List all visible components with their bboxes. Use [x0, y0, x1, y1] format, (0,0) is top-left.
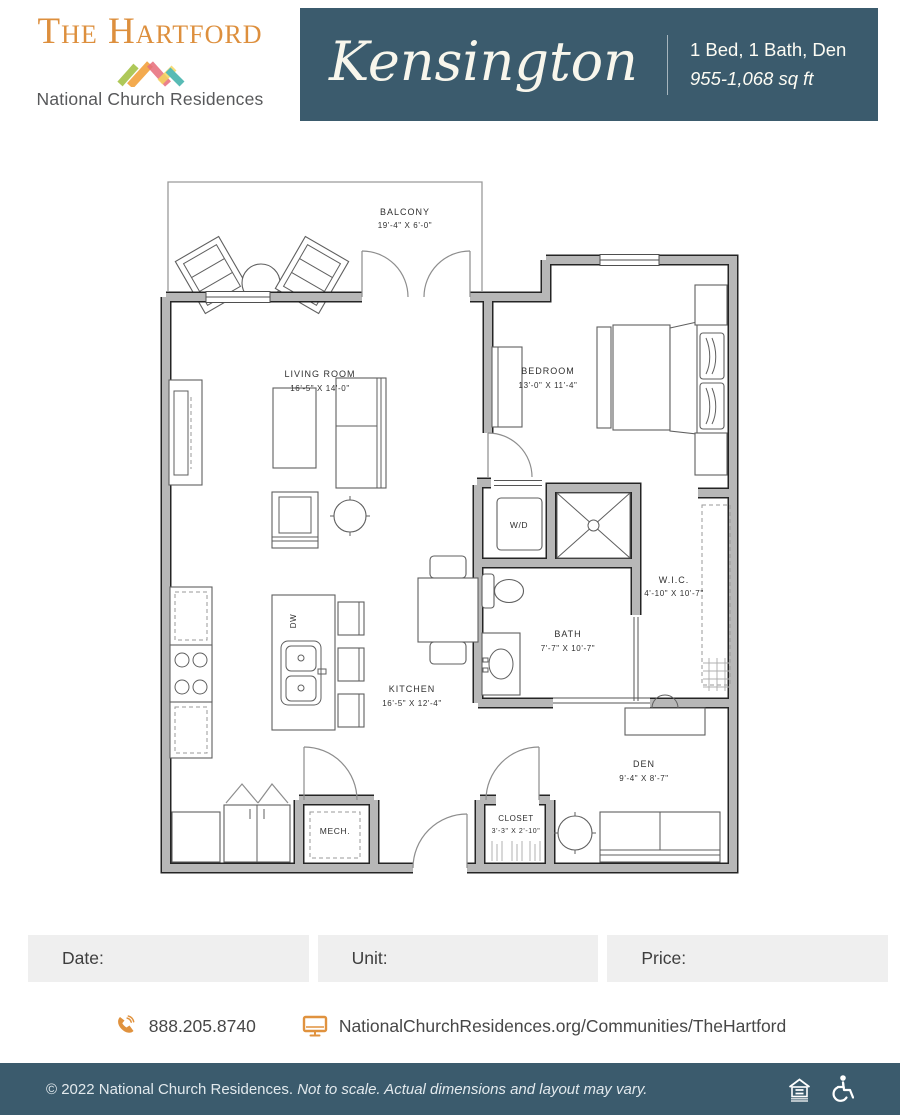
- plan-name: Kensington: [300, 35, 667, 95]
- closet-door: [486, 747, 539, 800]
- hall-door: [304, 747, 357, 800]
- den-table: [554, 812, 596, 854]
- coffee-table: [273, 388, 316, 468]
- closet-dims: 3'-3" X 2'-10": [492, 828, 541, 835]
- bedroom-door: [488, 433, 532, 477]
- kitchen-island: [272, 595, 335, 730]
- phone-number: 888.205.8740: [149, 1016, 256, 1037]
- range-stove: [170, 645, 212, 702]
- brand-name: The Hartford: [0, 12, 300, 53]
- balcony-label: BALCONY: [380, 207, 430, 217]
- entry-door: [413, 814, 467, 868]
- dresser: [492, 347, 522, 427]
- date-field[interactable]: Date:: [28, 935, 309, 982]
- refrigerator: [224, 805, 290, 862]
- kitchen-dims: 16'-5" X 12'-4": [382, 699, 442, 708]
- tv-console: [169, 380, 202, 485]
- wic-shelving: [702, 505, 731, 691]
- plan-sqft: 955-1,068 sq ft: [690, 68, 878, 90]
- bath-label: BATH: [554, 629, 581, 639]
- bedroom-chair: [695, 433, 727, 475]
- unit-field[interactable]: Unit:: [318, 935, 599, 982]
- bath-dims: 7'-7" X 10'-7": [541, 644, 596, 653]
- living-room-window: [206, 292, 270, 303]
- monitor-icon: [302, 1014, 328, 1038]
- price-label: Price:: [607, 948, 686, 969]
- armchair: [272, 492, 318, 548]
- write-in-fields: Date: Unit: Price:: [28, 935, 888, 982]
- contact-row: 888.205.8740 NationalChurchResidences.or…: [0, 1005, 900, 1047]
- dining-set: [418, 556, 478, 664]
- toilet: [482, 574, 524, 608]
- bed: [597, 322, 724, 434]
- bedroom-dims: 13'-0" X 11'-4": [519, 381, 578, 390]
- balcony-french-doors: [362, 251, 470, 297]
- plan-banner: Kensington 1 Bed, 1 Bath, Den 955-1,068 …: [300, 8, 878, 121]
- balcony-dims: 19'-4" X 6'-0": [378, 221, 433, 230]
- floorplan-drawing: BALCONY 19'-4" X 6'-0" LIVING ROOM 16'-5…: [160, 175, 740, 885]
- closet-label: CLOSET: [498, 814, 534, 823]
- dw-label: DW: [289, 614, 298, 629]
- website-group: NationalChurchResidences.org/Communities…: [302, 1014, 786, 1038]
- plan-type: 1 Bed, 1 Bath, Den: [690, 39, 878, 61]
- pantry-bifold-doors: [226, 784, 288, 803]
- den-dims: 9'-4" X 8'-7": [619, 774, 668, 783]
- nightstand: [695, 285, 727, 325]
- phone-icon: [114, 1014, 138, 1038]
- den-sofa: [600, 812, 720, 862]
- wd-label: W/D: [510, 520, 528, 530]
- copyright-text: © 2022 National Church Residences.: [46, 1081, 293, 1098]
- side-table: [330, 496, 370, 536]
- brand-logo: The Hartford National Church Residences: [0, 12, 300, 110]
- shower: [557, 493, 630, 558]
- bath-vanity: [482, 633, 520, 695]
- base-cabinet: [172, 812, 220, 862]
- living-room-dims: 16'-5" X 14'-0": [290, 384, 350, 393]
- disclaimer-text: Not to scale. Actual dimensions and layo…: [297, 1081, 647, 1098]
- living-room-label: LIVING ROOM: [284, 369, 355, 379]
- island-stools: [338, 602, 364, 727]
- bedroom-window: [600, 255, 659, 266]
- sofa: [336, 378, 386, 488]
- unit-label: Unit:: [318, 948, 388, 969]
- flyer-page: The Hartford National Church Residences …: [0, 0, 900, 1115]
- org-name: National Church Residences: [0, 89, 300, 110]
- wic-dims: 4'-10" X 10'-7": [644, 589, 704, 598]
- footer-bar: © 2022 National Church Residences. Not t…: [0, 1063, 900, 1115]
- website-url[interactable]: NationalChurchResidences.org/Communities…: [339, 1016, 786, 1037]
- brand-roofs-icon: [108, 57, 192, 87]
- phone-group: 888.205.8740: [114, 1014, 256, 1038]
- mech-label: MECH.: [320, 826, 350, 836]
- date-label: Date:: [28, 948, 104, 969]
- kitchen-label: KITCHEN: [389, 684, 436, 694]
- den-label: DEN: [633, 759, 655, 769]
- closet-hangers: [492, 841, 540, 861]
- equal-housing-icon: [786, 1076, 813, 1103]
- bedroom-label: BEDROOM: [521, 366, 575, 376]
- accessibility-icon: [828, 1074, 854, 1104]
- wic-label: W.I.C.: [659, 575, 690, 585]
- price-field[interactable]: Price:: [607, 935, 888, 982]
